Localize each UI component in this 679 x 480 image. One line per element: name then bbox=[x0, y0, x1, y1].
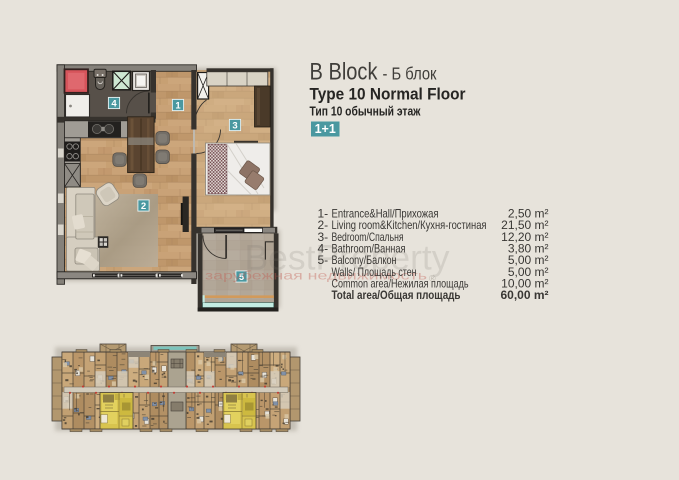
svg-text:Total area/Общая площадь: Total area/Общая площадь bbox=[332, 288, 461, 302]
svg-text:4: 4 bbox=[111, 98, 117, 109]
svg-text:1+1: 1+1 bbox=[315, 122, 336, 136]
svg-text:Тип 10 обычный этаж: Тип 10 обычный этаж bbox=[310, 105, 421, 119]
svg-text:60,00 m²: 60,00 m² bbox=[500, 288, 548, 302]
svg-text:- Б блок: - Б блок bbox=[383, 64, 437, 84]
svg-text:1: 1 bbox=[175, 100, 181, 111]
svg-text:Type 10 Normal Floor: Type 10 Normal Floor bbox=[310, 85, 467, 103]
svg-text:5-: 5- bbox=[318, 253, 329, 267]
svg-text:2: 2 bbox=[141, 201, 146, 212]
svg-text:B Block: B Block bbox=[310, 59, 379, 86]
svg-text:3: 3 bbox=[232, 120, 237, 131]
